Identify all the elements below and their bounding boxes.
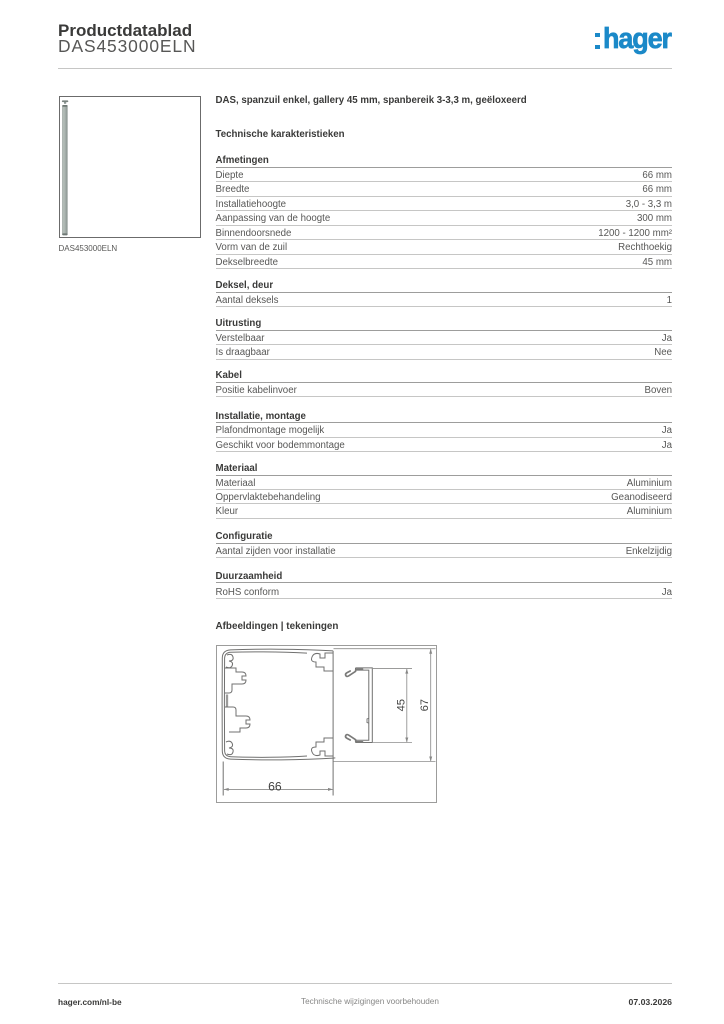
svg-text:66: 66 <box>268 779 282 793</box>
svg-text:45: 45 <box>395 698 407 710</box>
svg-text:67: 67 <box>419 698 431 710</box>
